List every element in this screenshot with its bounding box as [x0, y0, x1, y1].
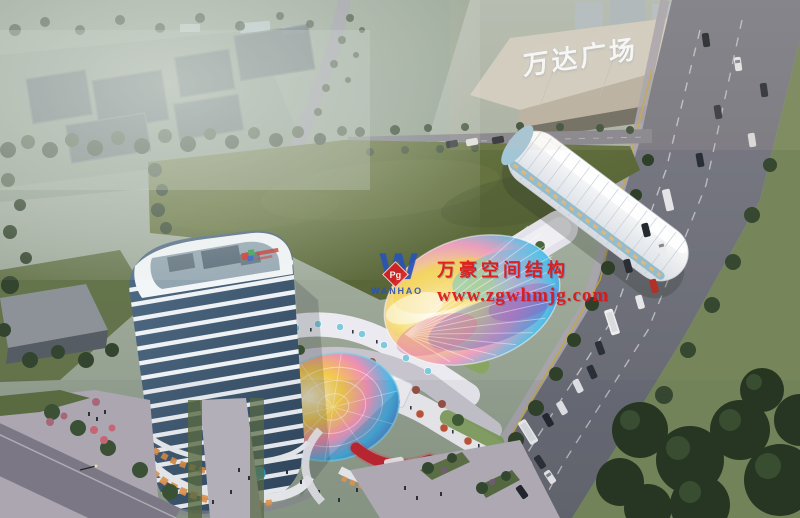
watermark: W Pg WANHAO 万豪空间结构 www.zgwhmjg.com [366, 252, 609, 307]
watermark-company: 万豪空间结构 [437, 256, 609, 282]
wanhao-logo-icon: W Pg WANHAO [366, 252, 428, 296]
wanhao-logo-text: WANHAO [366, 286, 428, 296]
watermark-website: www.zgwhmjg.com [437, 285, 609, 307]
watermark-text: 万豪空间结构 www.zgwhmjg.com [437, 252, 609, 307]
wanhao-badge-text: Pg [390, 269, 402, 279]
rendering-canvas: 万达广场 W Pg WANHAO 万豪空间结构 www.zgwhmjg.com [0, 0, 800, 518]
